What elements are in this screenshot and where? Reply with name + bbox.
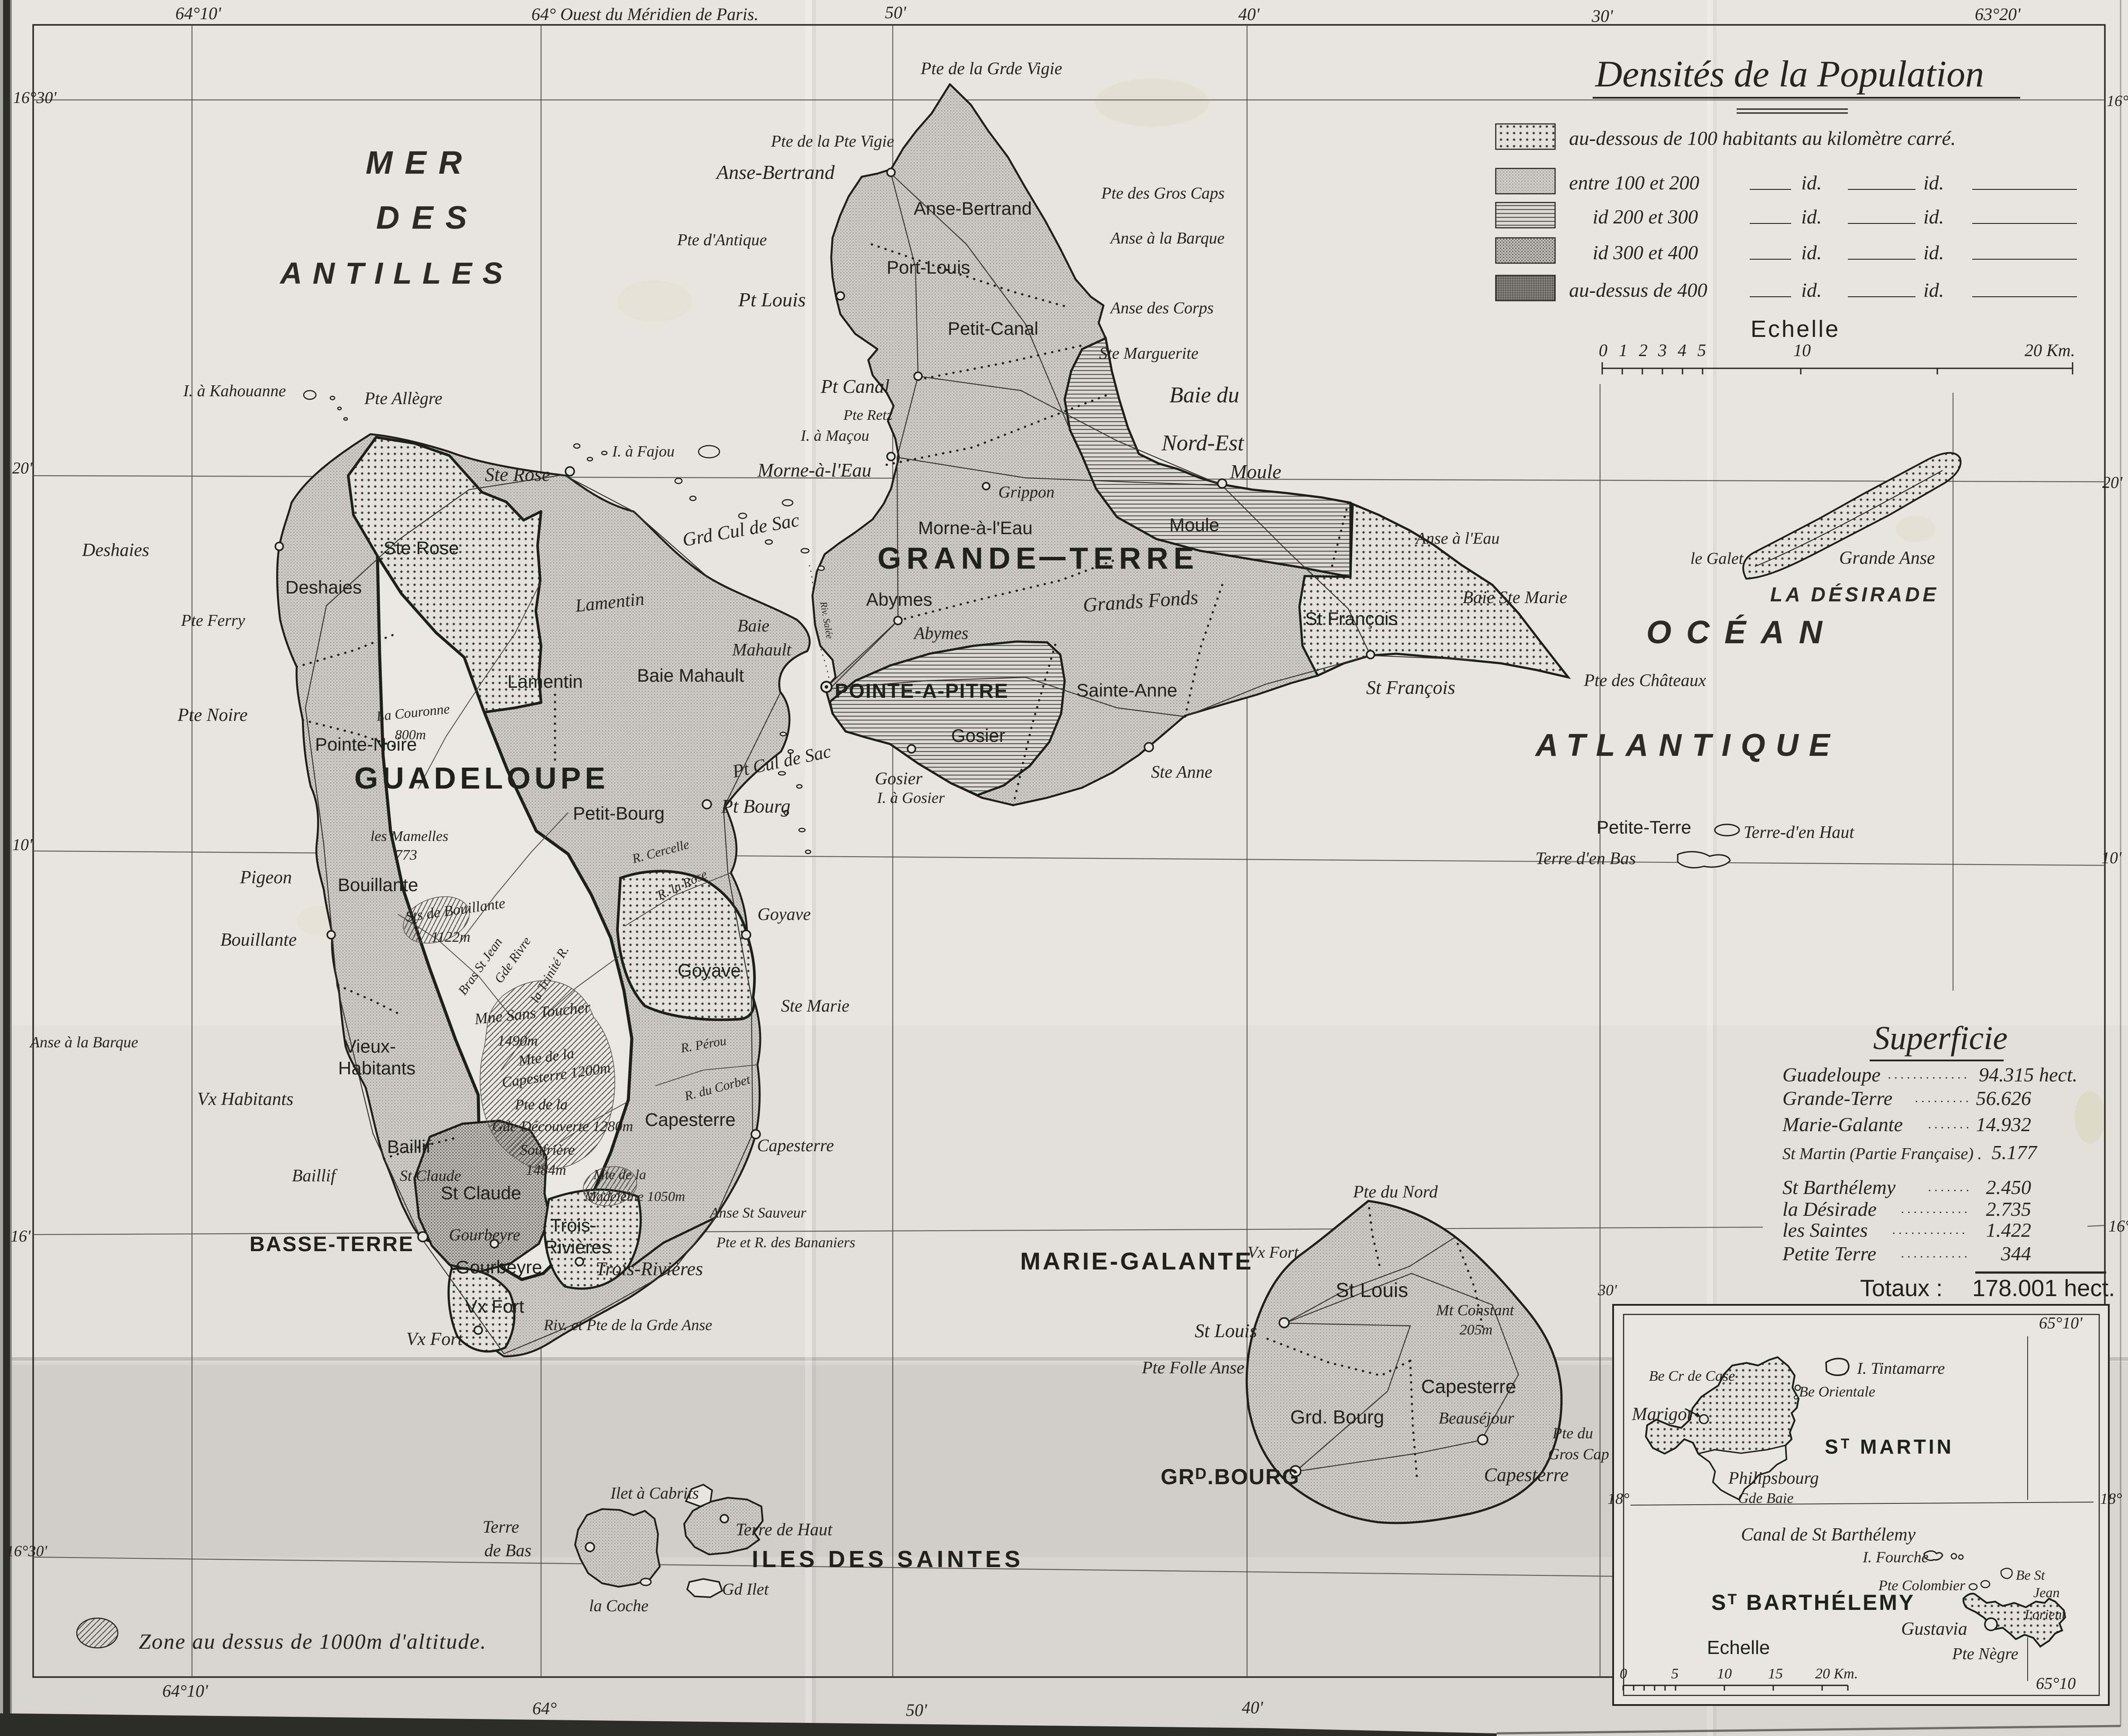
svg-text:3: 3 [1658,340,1667,360]
svg-text:Pigeon: Pigeon [240,868,292,888]
svg-text:St Barthélemy: St Barthélemy [1782,1176,1896,1198]
svg-text:Densités de la Population: Densités de la Population [1595,53,1984,95]
svg-text:GUADELOUPE: GUADELOUPE [354,761,609,795]
svg-text:Ste Anne: Ste Anne [1151,762,1212,782]
svg-text:Pte Ferry: Pte Ferry [181,611,245,630]
svg-text:Soufrière: Soufrière [520,1142,575,1158]
svg-text:10: 10 [1717,1666,1732,1682]
svg-text:Gourbeyre: Gourbeyre [449,1226,520,1244]
svg-text:MER: MER [366,144,474,181]
svg-text:Terre: Terre [483,1517,519,1537]
svg-text:Mte de la: Mte de la [593,1166,646,1182]
svg-text:Pte Folle Anse: Pte Folle Anse [1141,1358,1244,1377]
svg-text:Ste Rose: Ste Rose [485,464,550,485]
svg-text:Gustavia: Gustavia [1901,1619,1967,1639]
svg-text:ILES DES SAINTES: ILES DES SAINTES [752,1546,1024,1572]
svg-text:2.450: 2.450 [1986,1176,2032,1198]
svg-text:Canal de St Barthélemy: Canal de St Barthélemy [1741,1525,1916,1545]
svg-text:Terre-d'en Haut: Terre-d'en Haut [1744,822,1854,842]
svg-text:ST BARTHÉLEMY: ST BARTHÉLEMY [1711,1590,1915,1615]
svg-text:Vx Habitants: Vx Habitants [197,1089,293,1109]
svg-text:St Claude: St Claude [400,1167,461,1184]
svg-text:Moule: Moule [1169,515,1219,535]
svg-text:Gros Cap: Gros Cap [1548,1445,1609,1463]
svg-text:I. à Gosier: I. à Gosier [877,789,945,806]
svg-text:Gde Baie: Gde Baie [1738,1490,1793,1506]
svg-text:Baie Mahault: Baie Mahault [637,665,744,686]
svg-text:64° Ouest du Méridien de Paris: 64° Ouest du Méridien de Paris. [531,4,758,24]
svg-text:Pt Bourg: Pt Bourg [721,796,790,817]
svg-text:178.001 hect.: 178.001 hect. [1972,1275,2115,1301]
svg-text:St François: St François [1366,677,1455,698]
svg-text:Gosier: Gosier [951,725,1005,746]
svg-text:Ste Marguerite: Ste Marguerite [1099,344,1199,363]
svg-text:64°10': 64°10' [175,3,222,23]
svg-text:4: 4 [1678,340,1686,360]
svg-text:Gourbeyre: Gourbeyre [456,1257,542,1277]
svg-text:Pte des Gros Caps: Pte des Gros Caps [1101,184,1225,202]
svg-text:5: 5 [1697,340,1706,360]
svg-text:Ilet à Cabrits: Ilet à Cabrits [610,1484,699,1503]
svg-text:1.422: 1.422 [1986,1219,2032,1241]
svg-text:800m: 800m [395,727,426,742]
svg-text:id.: id. [1801,206,1822,228]
svg-text:Gd Ilet: Gd Ilet [722,1580,769,1599]
svg-text:0: 0 [1620,1666,1627,1682]
svg-text:Vieux-: Vieux- [344,1036,396,1057]
svg-text:Capesterre: Capesterre [645,1109,736,1130]
svg-text:Lamentin: Lamentin [507,671,583,692]
svg-text:50': 50' [885,3,907,22]
svg-text:16°30': 16°30' [2107,92,2128,110]
svg-text:Totaux :: Totaux : [1860,1275,1943,1301]
svg-text:40': 40' [1242,1698,1264,1717]
svg-text:Be St: Be St [2016,1567,2046,1583]
svg-text:64°: 64° [532,1698,557,1718]
svg-text:LA DÉSIRADE: LA DÉSIRADE [1770,583,1939,606]
svg-text:id 300 et 400: id 300 et 400 [1593,241,1698,264]
svg-text:Marie-Galante: Marie-Galante [1782,1113,1903,1136]
svg-text:Morne-à-l'Eau: Morne-à-l'Eau [918,518,1032,538]
svg-text:Superficie: Superficie [1873,1020,2008,1057]
svg-text:Zone au dessus de 1000m d'alti: Zone au dessus de 1000m d'altitude. [139,1629,487,1654]
svg-text:15: 15 [1768,1666,1783,1682]
svg-text:Mahault: Mahault [732,640,792,659]
svg-text:65°10: 65°10 [2036,1674,2076,1693]
svg-text:Be Cr de Case: Be Cr de Case [1649,1368,1735,1384]
svg-text:Terre de Haut: Terre de Haut [736,1520,833,1539]
svg-text:Gosier: Gosier [875,769,922,788]
svg-text:2.735: 2.735 [1986,1198,2032,1220]
svg-text:Marigot: Marigot [1631,1404,1693,1424]
svg-text:Baie du: Baie du [1169,383,1239,408]
svg-text:OCÉAN: OCÉAN [1646,614,1837,650]
svg-text:ATLANTIQUE: ATLANTIQUE [1535,728,1840,763]
svg-text:Grippon: Grippon [998,483,1055,501]
svg-text:Pte de la: Pte de la [514,1097,568,1113]
svg-text:20': 20' [2102,473,2123,492]
svg-text:20': 20' [12,459,33,477]
svg-text:Anse à la Barque: Anse à la Barque [29,1033,138,1051]
svg-text:65°10': 65°10' [2039,1314,2083,1332]
svg-text:Anse St Sauveur: Anse St Sauveur [709,1205,807,1221]
svg-text:Echelle: Echelle [1707,1637,1770,1658]
svg-text:Port-Louis: Port-Louis [887,257,970,278]
svg-text:Philipsbourg: Philipsbourg [1728,1468,1819,1488]
svg-text:Petit-Canal: Petit-Canal [948,318,1038,339]
svg-text:St Louis: St Louis [1195,1320,1257,1341]
svg-text:I. à Maçou: I. à Maçou [800,427,869,444]
svg-text:Deshaies: Deshaies [82,540,149,560]
svg-text:POINTE-A-PITRE: POINTE-A-PITRE [835,679,1009,702]
svg-text:Vx Fort: Vx Fort [406,1329,463,1349]
svg-text:5: 5 [1671,1666,1679,1682]
svg-text:Baillif: Baillif [387,1136,431,1157]
svg-text:Lorient: Lorient [2024,1606,2066,1622]
svg-text:Bouillante: Bouillante [338,875,418,895]
svg-text:DES: DES [376,199,479,236]
svg-text:56.626: 56.626 [1976,1087,2032,1109]
svg-text:Baillif: Baillif [292,1166,338,1185]
svg-text:la Coche: la Coche [589,1597,648,1615]
svg-text:MARIE-GALANTE: MARIE-GALANTE [1020,1247,1254,1275]
svg-text:Habitants: Habitants [338,1058,415,1078]
svg-text:64°10': 64°10' [162,1681,209,1701]
svg-text:63°20': 63°20' [1975,4,2021,24]
svg-text:id.: id. [1923,206,1944,228]
svg-text:Pte du: Pte du [1552,1424,1593,1442]
svg-text:Jean: Jean [2033,1585,2059,1600]
svg-text:GRANDE: GRANDE [877,541,1041,575]
svg-text:Petite Terre: Petite Terre [1782,1242,1876,1265]
svg-text:Riv. et Pte de la Grde Anse: Riv. et Pte de la Grde Anse [543,1316,712,1334]
svg-text:Pt Canal: Pt Canal [820,376,890,397]
svg-text:id.: id. [1801,241,1822,264]
svg-text:Guadeloupe: Guadeloupe [1782,1064,1881,1086]
svg-text:Ste Marie: Ste Marie [781,996,850,1016]
svg-text:30': 30' [1597,1281,1617,1299]
svg-text:Pte Noire: Pte Noire [177,705,248,725]
svg-text:BASSE-TERRE: BASSE-TERRE [250,1233,414,1256]
svg-text:Be Orientale: Be Orientale [1799,1384,1875,1400]
svg-text:0: 0 [1599,340,1607,360]
svg-text:Petit-Bourg: Petit-Bourg [573,803,665,823]
svg-text:id.: id. [1801,279,1822,301]
svg-text:14.932: 14.932 [1976,1113,2032,1136]
svg-text:St Martin (Partie Française) .: St Martin (Partie Française) . [1782,1145,1982,1163]
svg-text:TERRE: TERRE [1069,541,1199,575]
svg-text:Grande-Terre: Grande-Terre [1782,1087,1892,1109]
svg-text:Pte et R. des Bananiers: Pte et R. des Bananiers [716,1235,855,1251]
svg-text:16°30': 16°30' [13,89,57,107]
svg-text:les Mamelles: les Mamelles [370,828,448,844]
svg-text:10': 10' [12,836,33,854]
svg-text:Pte Nègre: Pte Nègre [1952,1645,2018,1663]
svg-text:entre 100 et 200: entre 100 et 200 [1569,172,1700,194]
svg-text:Beauséjour: Beauséjour [1439,1409,1514,1427]
svg-text:16°30': 16°30' [6,1542,48,1560]
svg-text:Goyave: Goyave [757,904,811,924]
svg-text:Anse à la Barque: Anse à la Barque [1109,229,1225,247]
svg-text:I. Fourche: I. Fourche [1862,1548,1929,1566]
svg-text:St Claude: St Claude [441,1183,521,1203]
svg-text:id.: id. [1801,172,1822,194]
svg-text:au-dessous de 100 habitants au: au-dessous de 100 habitants au kilomètre… [1569,127,1956,149]
svg-text:Terre d'en Bas: Terre d'en Bas [1535,848,1636,868]
svg-text:40': 40' [1238,4,1260,24]
svg-text:Goyave: Goyave [678,960,741,981]
svg-text:Abymes: Abymes [913,623,968,643]
svg-text:Deshaies: Deshaies [285,577,362,597]
svg-text:Anse-Bertrand: Anse-Bertrand [715,161,835,183]
svg-text:94.315 hect.: 94.315 hect. [1979,1064,2077,1086]
svg-text:St Louis: St Louis [1336,1279,1408,1301]
svg-text:1490m: 1490m [497,1033,538,1049]
svg-text:le Galet: le Galet [1690,549,1744,568]
svg-text:Vx Fort: Vx Fort [1247,1243,1299,1262]
svg-text:I. à Fajou: I. à Fajou [612,443,675,460]
svg-text:Anse des Corps: Anse des Corps [1109,299,1213,317]
svg-text:344: 344 [2001,1242,2031,1265]
svg-text:Pte Allègre: Pte Allègre [364,388,442,408]
svg-text:Capesterre: Capesterre [1421,1376,1516,1397]
svg-text:Rivières: Rivières [545,1237,611,1257]
svg-text:ANTILLES: ANTILLES [279,256,513,290]
svg-text:18°: 18° [1607,1490,1629,1507]
svg-text:Petite-Terre: Petite-Terre [1597,817,1691,837]
svg-text:Pt Louis: Pt Louis [738,288,806,311]
svg-text:Grande Anse: Grande Anse [1839,548,1935,568]
svg-text:1484m: 1484m [526,1162,566,1178]
svg-text:Gde Découverte 1280m: Gde Découverte 1280m [492,1118,633,1135]
svg-text:Anse-Bertrand: Anse-Bertrand [914,198,1032,219]
svg-text:1: 1 [1619,340,1628,360]
svg-text:id.: id. [1923,279,1944,301]
svg-text:20 Km.: 20 Km. [2025,340,2075,360]
svg-text:St François: St François [1305,608,1398,629]
svg-text:Morne-à-l'Eau: Morne-à-l'Eau [757,460,871,481]
svg-text:Sainte-Anne: Sainte-Anne [1076,680,1177,700]
svg-text:20 Km.: 20 Km. [1815,1666,1858,1682]
svg-text:Baie: Baie [737,616,769,635]
svg-text:Nord-Est: Nord-Est [1161,431,1244,456]
svg-text:Moule: Moule [1230,460,1282,483]
svg-text:Pte du Nord: Pte du Nord [1353,1182,1438,1201]
svg-text:Mt Constant: Mt Constant [1436,1301,1515,1319]
svg-text:Pte des Châteaux: Pte des Châteaux [1583,670,1706,690]
svg-text:Pte d'Antique: Pte d'Antique [677,231,767,249]
svg-text:50': 50' [906,1700,928,1720]
svg-text:Capesterre: Capesterre [1484,1464,1569,1486]
svg-text:Pte de la Pte Vigie: Pte de la Pte Vigie [771,132,894,151]
svg-text:GRD.BOURG: GRD.BOURG [1161,1465,1300,1489]
svg-text:Trois-: Trois- [550,1215,596,1235]
svg-text:Pte Retz: Pte Retz [843,407,892,423]
svg-text:Ste Rose: Ste Rose [384,538,459,558]
svg-text:30': 30' [1591,6,1614,26]
svg-text:au-dessus de 400: au-dessus de 400 [1569,279,1707,301]
svg-text:de Bas: de Bas [484,1540,531,1560]
svg-text:les Saintes: les Saintes [1782,1219,1868,1241]
svg-text:Abymes: Abymes [866,589,932,610]
svg-text:773: 773 [395,847,417,863]
svg-text:Madeleine 1050m: Madeleine 1050m [584,1188,685,1204]
svg-text:I. Tintamarre: I. Tintamarre [1857,1359,1945,1378]
svg-text:5.177: 5.177 [1992,1141,2038,1163]
svg-text:id 200 et 300: id 200 et 300 [1593,206,1698,228]
svg-text:id.: id. [1923,172,1944,194]
svg-text:id.: id. [1923,241,1944,264]
svg-text:Anse à l'Eau: Anse à l'Eau [1415,529,1500,548]
svg-text:16': 16' [10,1227,31,1245]
svg-text:Baie Ste Marie: Baie Ste Marie [1463,587,1567,607]
svg-text:Bouillante: Bouillante [220,930,297,950]
svg-text:Capesterre: Capesterre [757,1136,834,1155]
svg-text:1122m: 1122m [431,929,470,945]
svg-text:Echelle: Echelle [1751,316,1840,342]
svg-text:Trois-Rivières: Trois-Rivières [596,1258,703,1280]
svg-text:la Désirade: la Désirade [1782,1198,1877,1220]
svg-text:205m: 205m [1460,1322,1493,1338]
svg-text:Grd. Bourg: Grd. Bourg [1290,1407,1384,1428]
svg-text:18°: 18° [2100,1490,2122,1507]
svg-text:Vx Fort: Vx Fort [465,1296,524,1317]
svg-text:Pte de la Grde Vigie: Pte de la Grde Vigie [920,58,1062,78]
svg-text:16°: 16° [2108,1217,2128,1235]
svg-text:2: 2 [1639,340,1648,360]
svg-text:10': 10' [2101,849,2122,867]
svg-text:10: 10 [1793,340,1811,360]
svg-text:I. à Kahouanne: I. à Kahouanne [183,382,286,400]
